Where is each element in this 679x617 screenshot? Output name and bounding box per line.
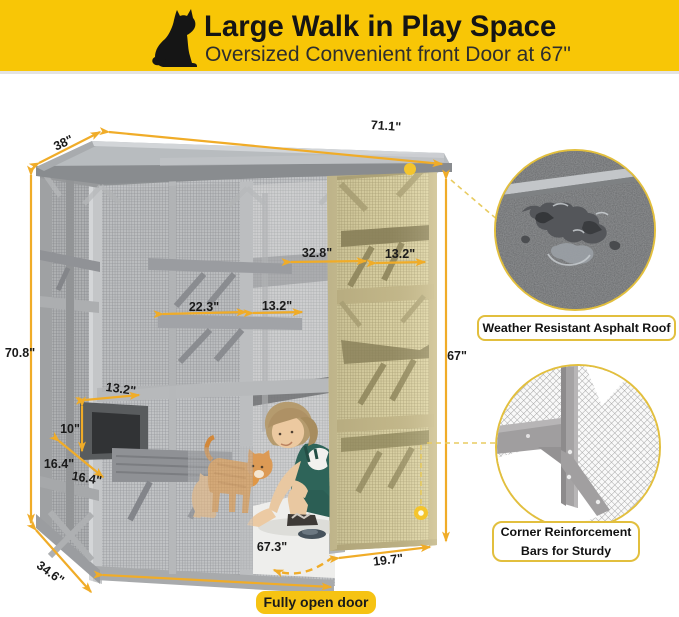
svg-text:32.8": 32.8" xyxy=(302,246,332,260)
svg-text:34.6": 34.6" xyxy=(34,558,67,587)
svg-text:70.8": 70.8" xyxy=(5,346,35,360)
svg-text:16.4": 16.4" xyxy=(44,457,74,471)
svg-text:13.2": 13.2" xyxy=(385,247,415,261)
svg-text:13.2": 13.2" xyxy=(262,299,292,313)
svg-text:38": 38" xyxy=(51,132,75,153)
svg-text:67.3": 67.3" xyxy=(257,540,287,554)
svg-text:19.7": 19.7" xyxy=(372,551,404,569)
svg-text:67": 67" xyxy=(447,349,467,363)
svg-text:10": 10" xyxy=(60,422,80,436)
svg-text:22.3": 22.3" xyxy=(189,300,219,314)
svg-text:71.1": 71.1" xyxy=(370,118,401,134)
